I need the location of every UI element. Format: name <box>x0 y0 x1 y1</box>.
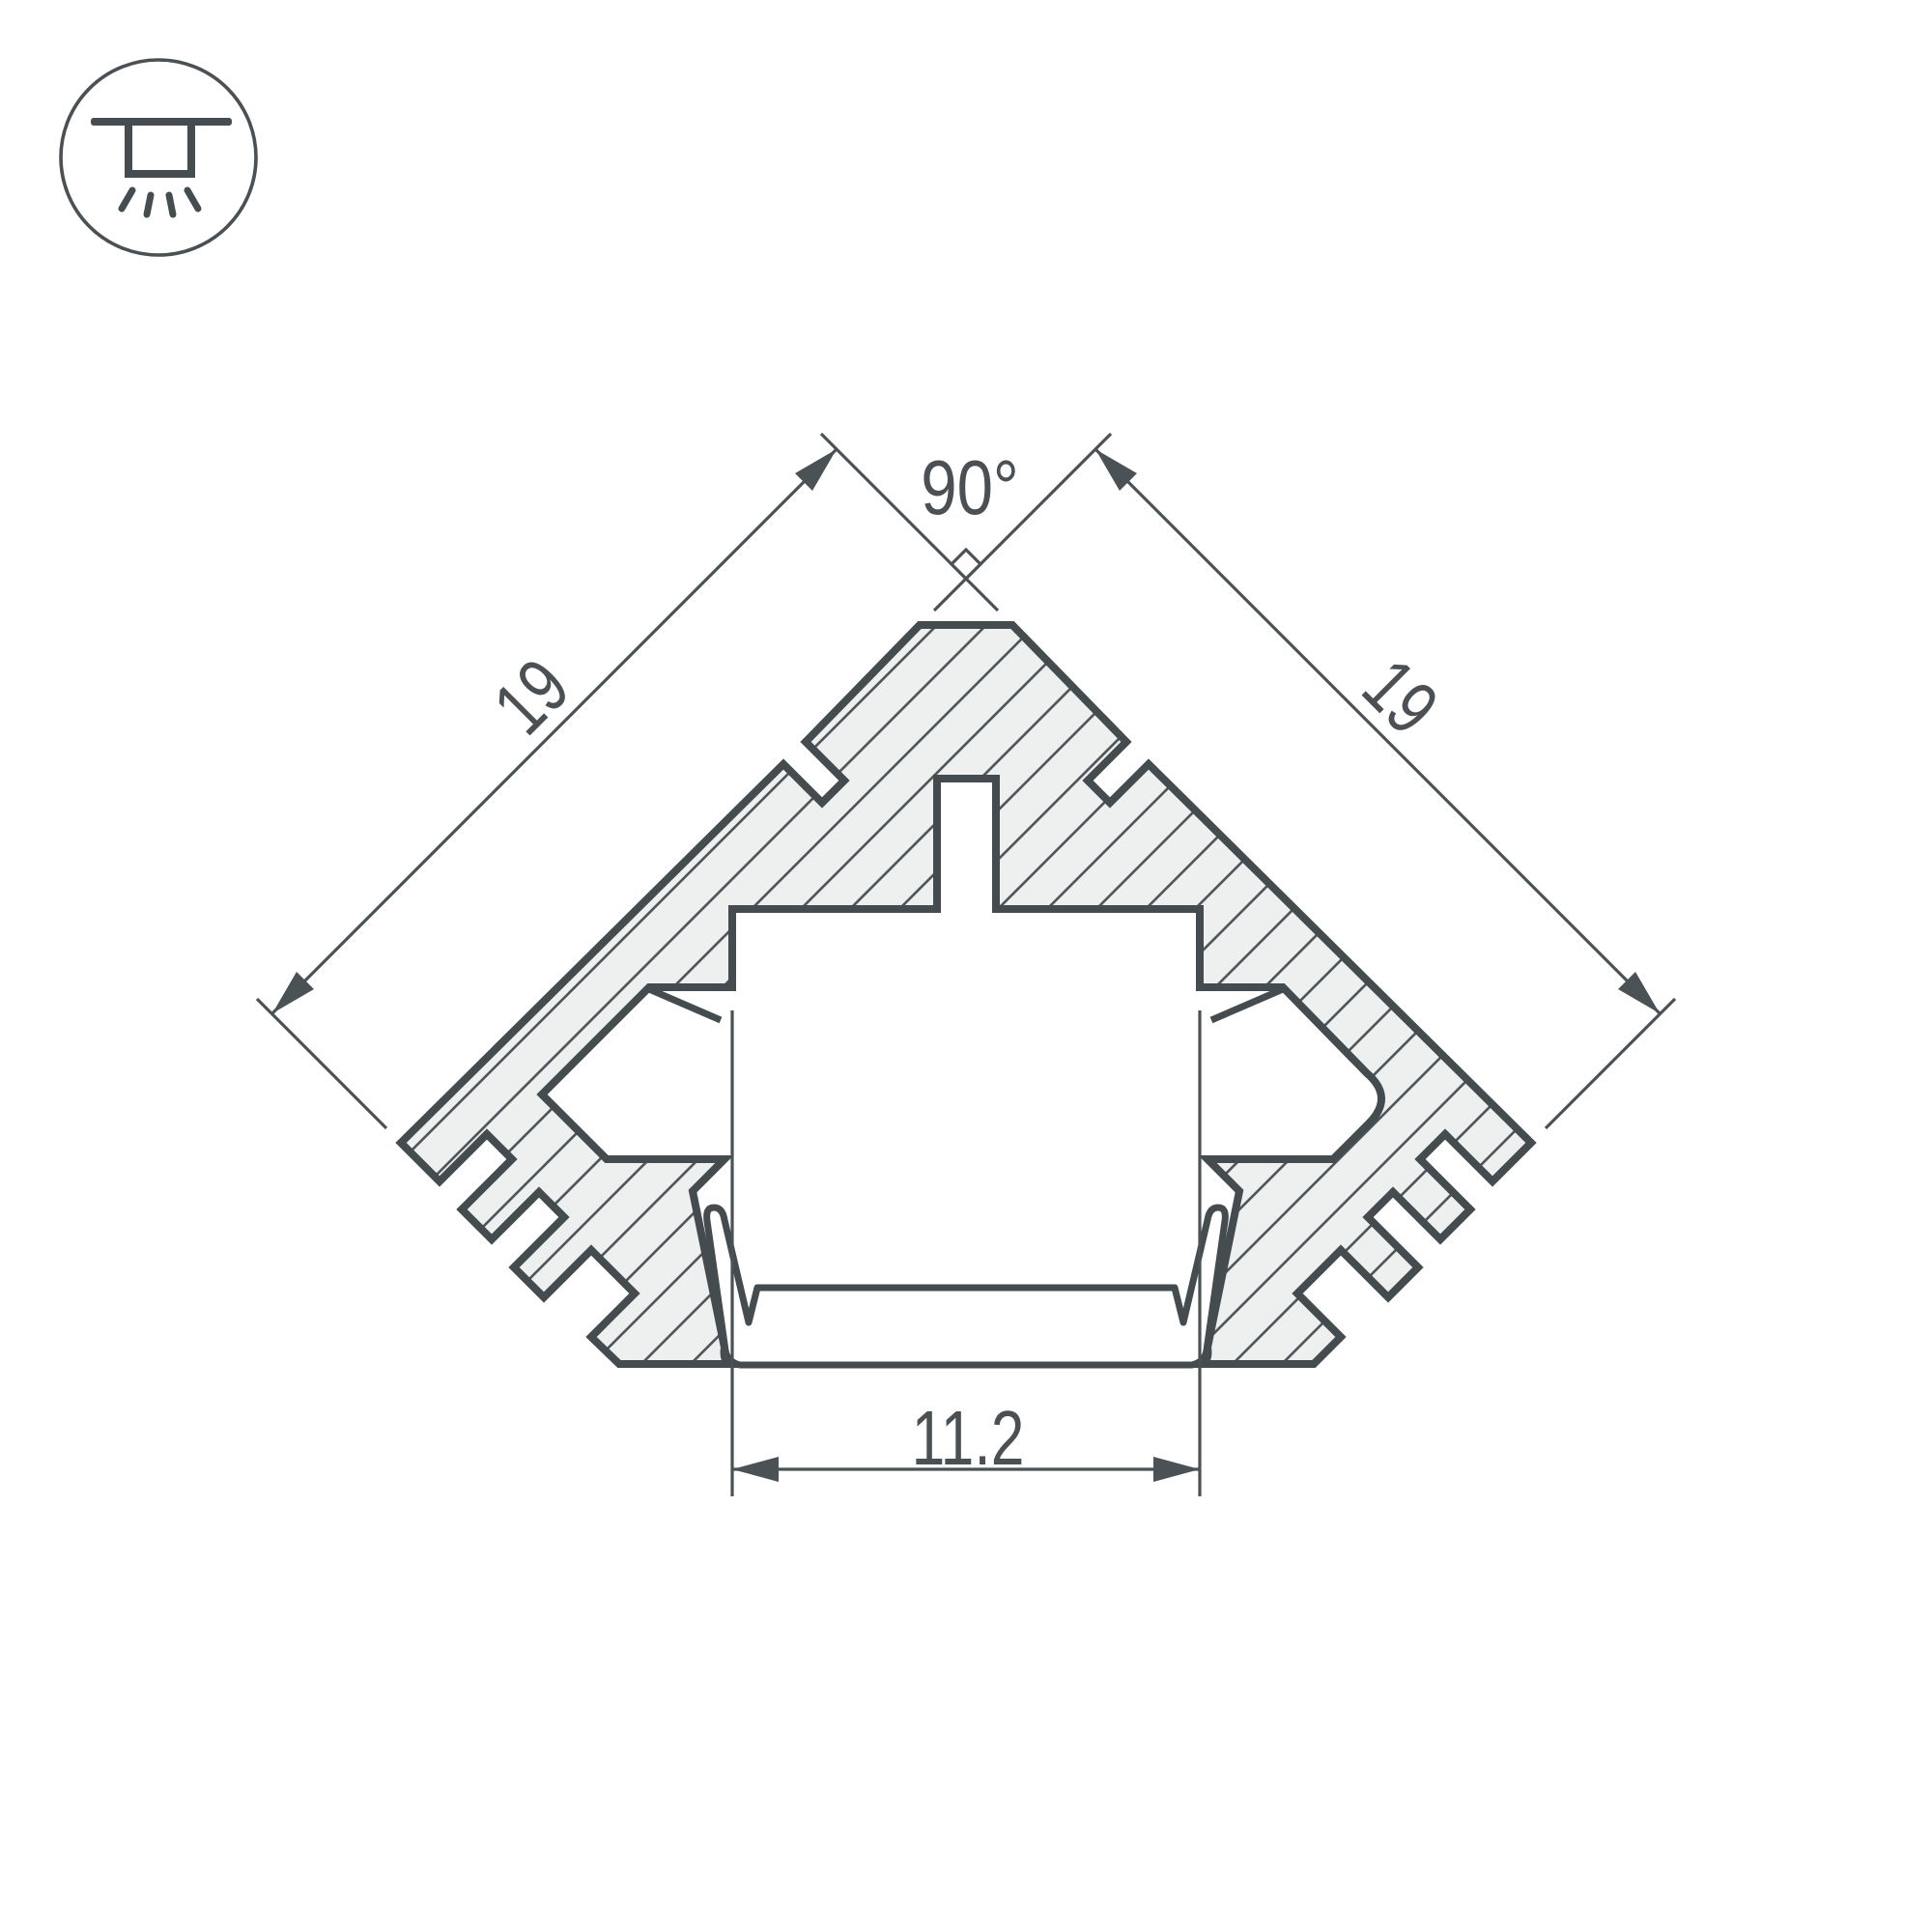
svg-text:90°: 90° <box>921 443 1019 530</box>
svg-text:19: 19 <box>478 643 586 752</box>
svg-text:19: 19 <box>1347 643 1455 752</box>
svg-text:11.2: 11.2 <box>912 1396 1025 1482</box>
